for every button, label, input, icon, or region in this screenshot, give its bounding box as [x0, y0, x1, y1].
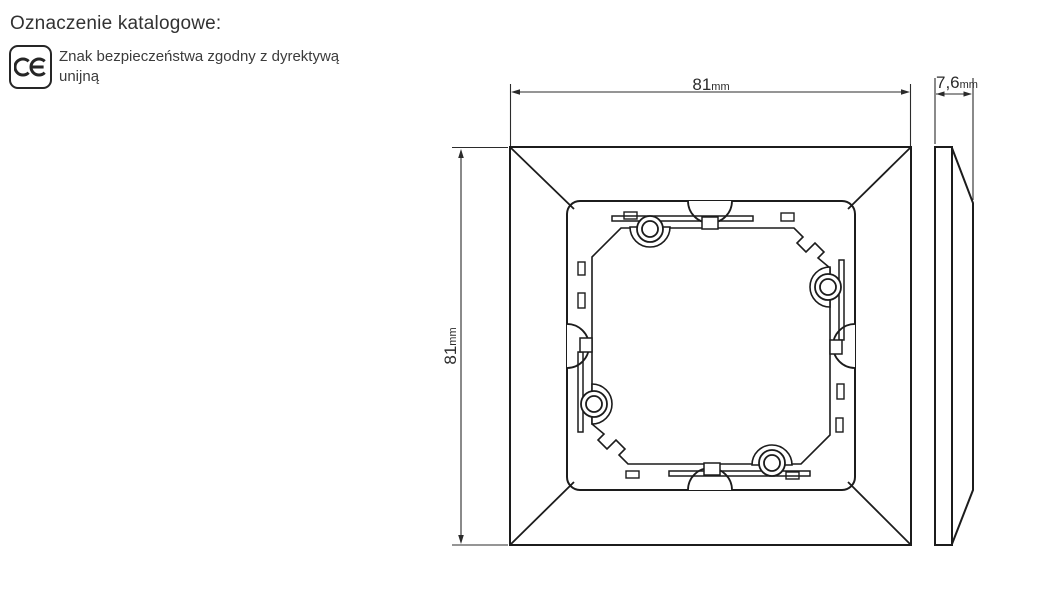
slot-left-lower	[578, 293, 585, 308]
bevel-diagonal-bottom-left	[511, 482, 574, 544]
clip-tabs	[580, 217, 842, 475]
slot-top-right	[781, 213, 794, 221]
tab-top	[702, 217, 718, 229]
screw-hole-right-top-inner	[820, 279, 836, 295]
bevel-diagonal-top-left	[511, 148, 574, 209]
front-view	[510, 147, 911, 545]
slot-bottom-left	[626, 471, 639, 478]
height-arrow-bottom	[458, 535, 464, 544]
height-dimension-label: 81mm	[441, 327, 460, 364]
bevel-diagonal-top-right	[848, 148, 910, 209]
width-arrow-left	[511, 89, 520, 95]
mounting-slots	[578, 212, 844, 479]
screw-hole-top-left-inner	[642, 221, 658, 237]
screw-hole-left-bottom-inner	[586, 396, 602, 412]
depth-dimension	[935, 78, 973, 200]
side-view	[935, 147, 973, 545]
width-arrow-right	[901, 89, 910, 95]
width-dimension-label: 81mm	[692, 75, 729, 94]
bevel-diagonal-bottom-right	[848, 482, 910, 544]
tab-left	[580, 338, 592, 352]
slot-right-upper	[837, 384, 844, 399]
tab-bottom	[704, 463, 720, 475]
aperture-outline	[592, 228, 830, 464]
height-dimension	[452, 148, 508, 546]
height-arrow-top	[458, 149, 464, 158]
slot-left-upper	[578, 262, 585, 275]
screw-holes	[581, 216, 841, 476]
side-back-plate	[935, 147, 952, 545]
technical-drawing: 81mm 81mm 7,6mm	[0, 0, 1042, 591]
screw-hole-bottom-right-inner	[764, 455, 780, 471]
side-front-profile	[952, 148, 973, 544]
depth-arrow-left	[936, 91, 945, 96]
depth-arrow-right	[964, 91, 973, 96]
depth-dimension-label: 7,6mm	[936, 73, 978, 92]
tab-right	[830, 340, 842, 354]
catalog-sheet: Oznaczenie katalogowe: Znak bezpieczeńst…	[0, 0, 1042, 591]
screw-boss-collars	[592, 227, 830, 465]
slot-right-lower	[836, 418, 843, 432]
retaining-bars	[578, 216, 844, 476]
